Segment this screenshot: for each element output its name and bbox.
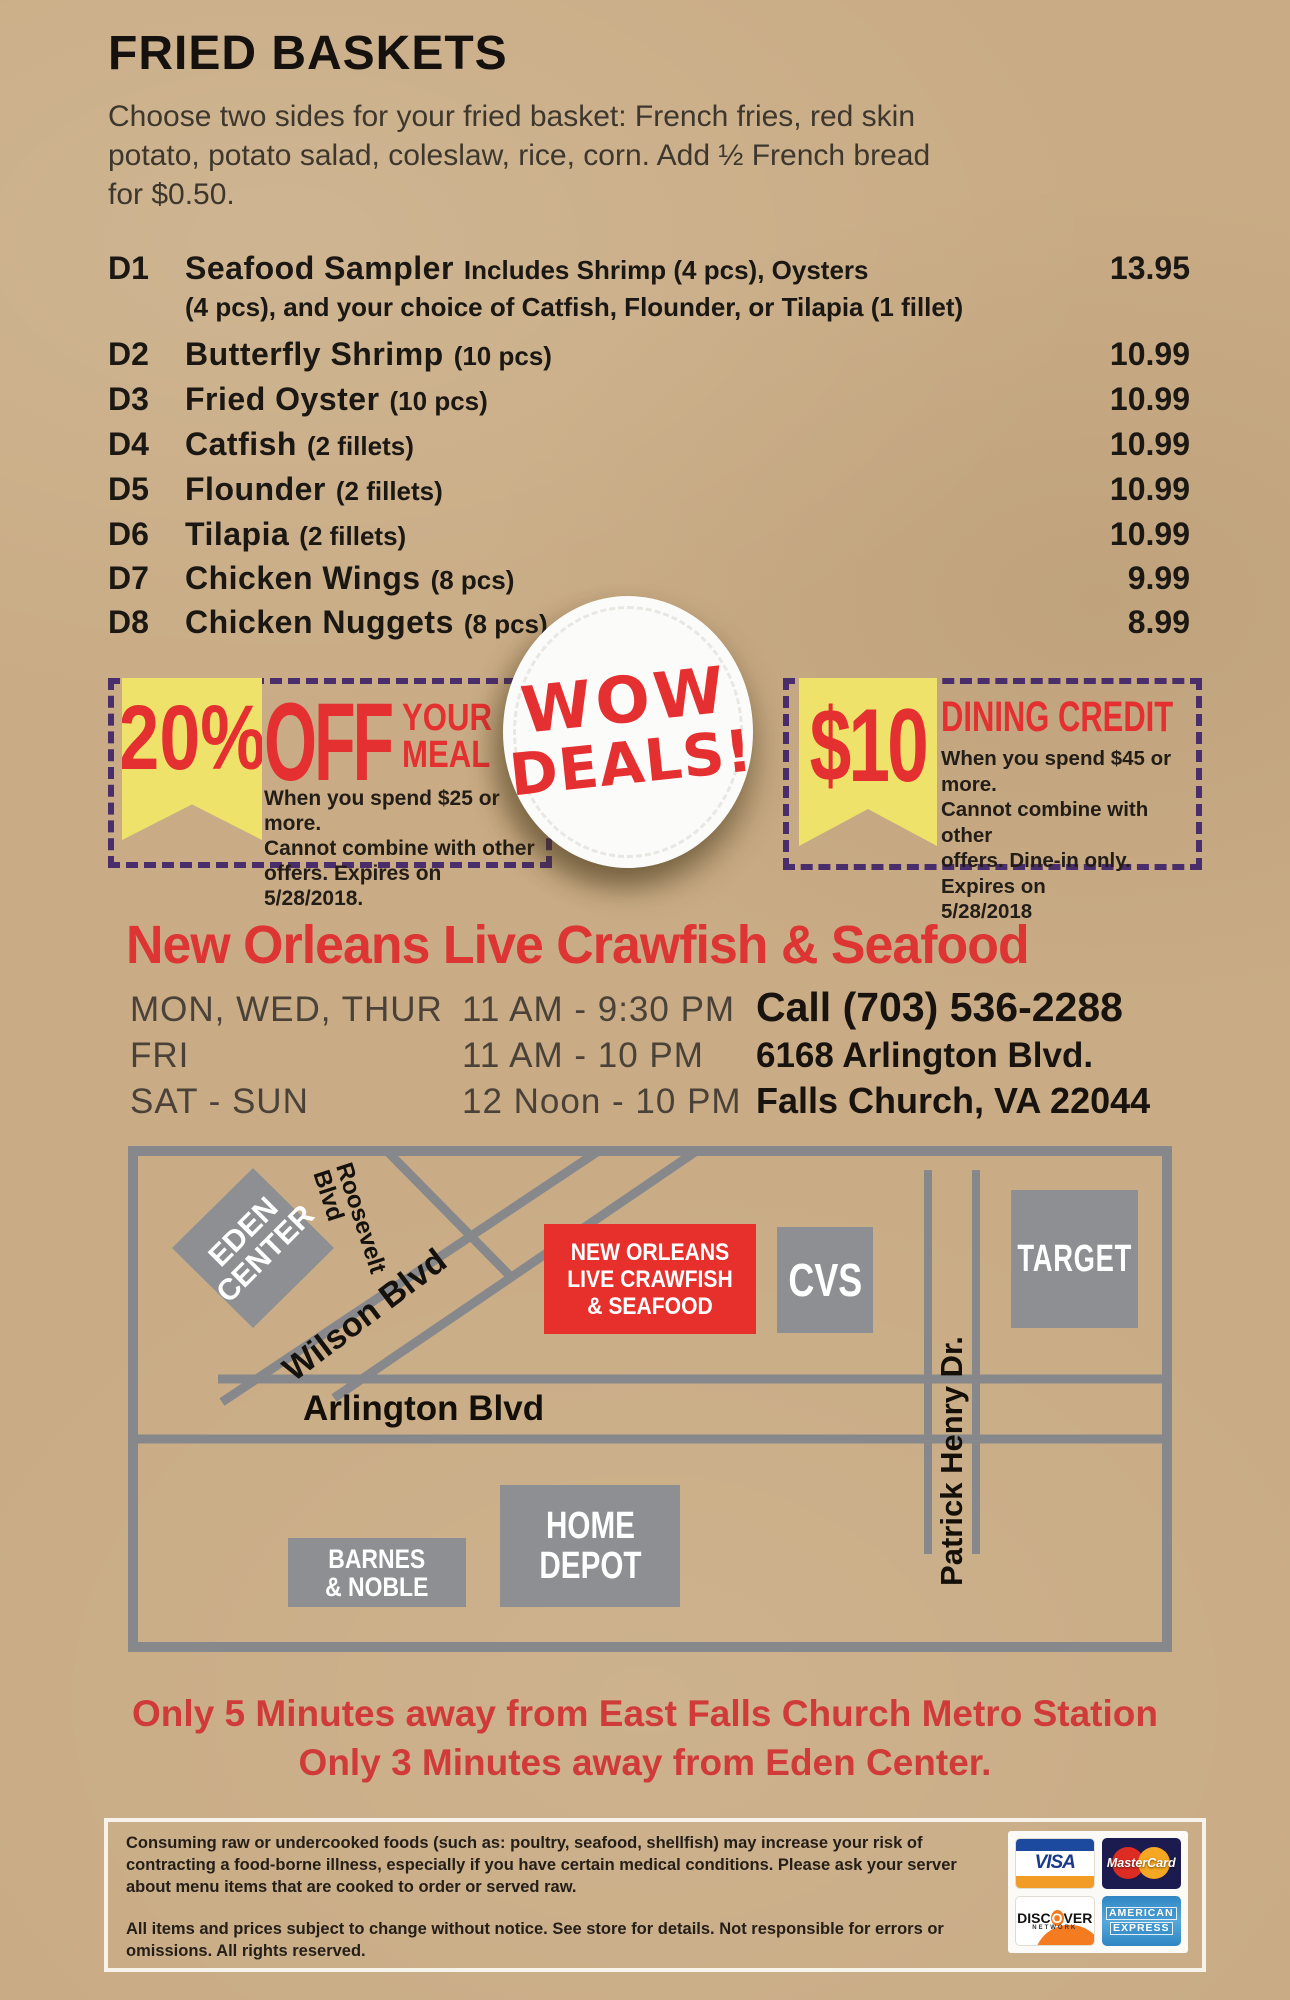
amex-logo-icon: AMERICAN EXPRESS bbox=[1102, 1896, 1182, 1947]
map-arlington-blvd-label: Arlington Blvd bbox=[303, 1389, 544, 1429]
barnes-noble-label-line: & NOBLE bbox=[325, 1573, 428, 1601]
coupon-terms: When you spend $45 or more. Cannot combi… bbox=[941, 746, 1196, 925]
coupon-terms-line: When you spend $25 or more. bbox=[264, 786, 546, 836]
coupon-10-dollar-credit: $10 DINING CREDIT When you spend $45 or … bbox=[783, 678, 1202, 870]
location-map: EDEN CENTER Roosevelt Blvd Wilson Blvd A… bbox=[128, 1146, 1172, 1652]
item-name: Chicken Wings bbox=[185, 560, 421, 596]
item-price: 10.99 bbox=[1110, 426, 1190, 463]
item-name: Butterfly Shrimp bbox=[185, 336, 444, 372]
discover-o: O bbox=[1051, 1910, 1064, 1926]
payment-cards-panel: VISA MasterCard DISCOVER NETWORK AMERICA… bbox=[1008, 1831, 1188, 1953]
coupon-terms-line: offers. Dine-in only. Expires on bbox=[941, 848, 1196, 899]
menu-item-row: D4Catfish(2 fillets) 10.99 bbox=[108, 426, 1190, 463]
restaurant-name: New Orleans Live Crawfish & Seafood bbox=[126, 914, 1029, 976]
yellow-ribbon-icon: 20% bbox=[122, 678, 262, 840]
item-description: Includes Shrimp (4 pcs), Oysters bbox=[464, 255, 869, 285]
menu-item-row: D6Tilapia(2 fillets) 10.99 bbox=[108, 516, 1190, 553]
discover-word-pre: DISC bbox=[1017, 1910, 1050, 1926]
target-label: TARGET bbox=[1017, 1238, 1132, 1281]
map-restaurant-box: NEW ORLEANS LIVE CRAWFISH & SEAFOOD bbox=[544, 1224, 756, 1334]
item-description: (10 pcs) bbox=[454, 341, 552, 371]
wow-deals-text: WOW DEALS! bbox=[500, 658, 755, 807]
item-code: D8 bbox=[108, 604, 185, 641]
discover-word-post: VER bbox=[1064, 1910, 1093, 1926]
item-price: 9.99 bbox=[1128, 560, 1190, 597]
coupon-terms-line: Cannot combine with other bbox=[264, 836, 546, 861]
item-name: Catfish bbox=[185, 426, 297, 462]
item-name: Tilapia bbox=[185, 516, 289, 552]
cvs-label: CVS bbox=[788, 1253, 862, 1307]
coupon-terms-line: offers. Expires on 5/28/2018. bbox=[264, 861, 546, 911]
hours-time: 12 Noon - 10 PM bbox=[462, 1082, 742, 1122]
coupon-credit-value: $10 bbox=[810, 694, 926, 798]
map-patrick-henry-dr-label: Patrick Henry Dr. bbox=[934, 1311, 970, 1611]
hours-days: SAT - SUN bbox=[130, 1082, 309, 1122]
coupon-20-percent-off: 20% OFF YOUR MEAL When you spend $25 or … bbox=[108, 678, 552, 868]
coupon-your-label: YOUR bbox=[402, 700, 492, 737]
menu-item-row: D2Butterfly Shrimp(10 pcs) 10.99 bbox=[108, 336, 1190, 373]
disclaimer-box: Consuming raw or undercooked foods (such… bbox=[104, 1818, 1206, 1972]
disclaimer-paragraph-2: All items and prices subject to change w… bbox=[126, 1918, 1006, 1962]
home-depot-label-line: DEPOT bbox=[539, 1546, 641, 1586]
map-cvs-box: CVS bbox=[777, 1227, 873, 1333]
disclaimer-text: Consuming raw or undercooked foods (such… bbox=[126, 1832, 1006, 1962]
mastercard-logo-icon: MasterCard bbox=[1102, 1838, 1182, 1889]
item-price: 10.99 bbox=[1110, 381, 1190, 418]
item-price: 10.99 bbox=[1110, 336, 1190, 373]
item-price: 8.99 bbox=[1128, 604, 1190, 641]
item-code: D7 bbox=[108, 560, 185, 597]
wow-deals-badge: WOW DEALS! bbox=[503, 596, 753, 868]
item-price: 10.99 bbox=[1110, 516, 1190, 553]
yellow-ribbon-icon: $10 bbox=[799, 678, 937, 846]
coupon-terms: When you spend $25 or more. Cannot combi… bbox=[264, 786, 546, 911]
item-description: (2 fillets) bbox=[336, 476, 443, 506]
item-price: 13.95 bbox=[1110, 250, 1190, 287]
map-target-box: TARGET bbox=[1011, 1190, 1138, 1328]
map-home-depot-box: HOME DEPOT bbox=[500, 1485, 680, 1607]
eden-distance-note: Only 3 Minutes away from Eden Center. bbox=[0, 1742, 1290, 1784]
coupon-discount-value: 20% bbox=[118, 692, 265, 784]
coupon-off-label: OFF bbox=[264, 688, 391, 798]
menu-item-row: D5Flounder(2 fillets) 10.99 bbox=[108, 471, 1190, 508]
barnes-noble-label-line: BARNES bbox=[325, 1545, 428, 1573]
address-line1: 6168 Arlington Blvd. bbox=[756, 1036, 1093, 1076]
hours-days: FRI bbox=[130, 1036, 189, 1076]
coupon-terms-line: Cannot combine with other bbox=[941, 797, 1196, 848]
address-line2: Falls Church, VA 22044 bbox=[756, 1080, 1150, 1122]
intro-line: for $0.50. bbox=[108, 178, 235, 212]
restaurant-box-line: NEW ORLEANS bbox=[567, 1239, 732, 1266]
item-description: (8 pcs) bbox=[431, 565, 515, 595]
hours-time: 11 AM - 9:30 PM bbox=[462, 990, 735, 1030]
menu-item-row: D3Fried Oyster(10 pcs) 10.99 bbox=[108, 381, 1190, 418]
item-description: (8 pcs) bbox=[464, 609, 548, 639]
hours-time: 11 AM - 10 PM bbox=[462, 1036, 704, 1076]
coupon-dining-credit-label: DINING CREDIT bbox=[941, 696, 1173, 739]
item-price: 10.99 bbox=[1110, 471, 1190, 508]
menu-item-row: D1Seafood SamplerIncludes Shrimp (4 pcs)… bbox=[108, 250, 1190, 287]
menu-item-row: D7Chicken Wings(8 pcs) 9.99 bbox=[108, 560, 1190, 597]
item-description: (2 fillets) bbox=[299, 521, 406, 551]
coupon-your-meal-label: YOUR MEAL bbox=[402, 700, 492, 774]
item-code: D6 bbox=[108, 516, 185, 553]
item-name: Flounder bbox=[185, 471, 326, 507]
item-code: D2 bbox=[108, 336, 185, 373]
item-code: D3 bbox=[108, 381, 185, 418]
item-name: Chicken Nuggets bbox=[185, 604, 454, 640]
mastercard-word: MasterCard bbox=[1107, 1856, 1176, 1870]
item-description-line2: (4 pcs), and your choice of Catfish, Flo… bbox=[185, 292, 963, 323]
amex-word-line: AMERICAN bbox=[1106, 1907, 1177, 1920]
discover-logo-icon: DISCOVER NETWORK bbox=[1015, 1896, 1095, 1947]
intro-line: Choose two sides for your fried basket: … bbox=[108, 100, 915, 134]
discover-network-word: NETWORK bbox=[1032, 1925, 1077, 1931]
visa-word: VISA bbox=[1035, 1852, 1075, 1874]
item-code: D4 bbox=[108, 426, 185, 463]
intro-line: potato, potato salad, coleslaw, rice, co… bbox=[108, 139, 930, 173]
visa-logo-icon: VISA bbox=[1015, 1838, 1095, 1889]
item-code: D1 bbox=[108, 250, 185, 287]
phone-number: Call (703) 536-2288 bbox=[756, 984, 1123, 1031]
disclaimer-paragraph-1: Consuming raw or undercooked foods (such… bbox=[126, 1832, 1006, 1898]
restaurant-box-line: LIVE CRAWFISH bbox=[567, 1266, 732, 1293]
map-barnes-noble-box: BARNES & NOBLE bbox=[288, 1538, 466, 1607]
hours-days: MON, WED, THUR bbox=[130, 990, 443, 1030]
metro-distance-note: Only 5 Minutes away from East Falls Chur… bbox=[0, 1693, 1290, 1735]
item-code: D5 bbox=[108, 471, 185, 508]
discover-word: DISCOVER bbox=[1017, 1911, 1092, 1925]
coupon-meal-label: MEAL bbox=[402, 737, 492, 774]
menu-flyer-page: FRIED BASKETS Choose two sides for your … bbox=[0, 0, 1290, 2000]
amex-word-line: EXPRESS bbox=[1110, 1922, 1173, 1935]
item-description: (2 fillets) bbox=[307, 431, 414, 461]
section-title: FRIED BASKETS bbox=[108, 26, 508, 81]
item-name: Fried Oyster bbox=[185, 381, 380, 417]
coupon-terms-line: When you spend $45 or more. bbox=[941, 746, 1196, 797]
home-depot-label-line: HOME bbox=[539, 1506, 641, 1546]
item-name: Seafood Sampler bbox=[185, 250, 454, 286]
item-description: (10 pcs) bbox=[390, 386, 488, 416]
restaurant-box-line: & SEAFOOD bbox=[567, 1293, 732, 1320]
